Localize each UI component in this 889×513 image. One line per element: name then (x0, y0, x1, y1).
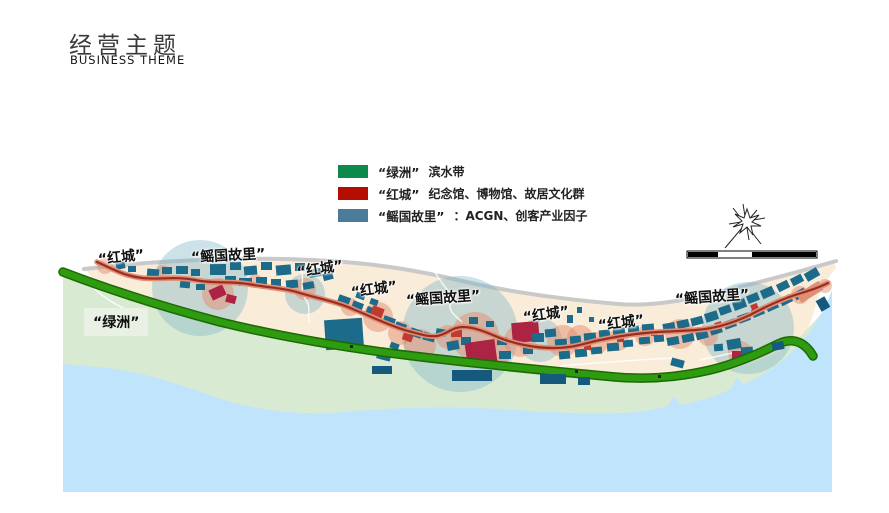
slide: 经营主题 BUSINESS THEME “绿洲” 滨水带 “红城” 纪念馆、博物… (0, 0, 889, 513)
map-canvas (0, 0, 889, 513)
compass-rose-icon (725, 204, 765, 248)
scale-bar (687, 251, 817, 258)
